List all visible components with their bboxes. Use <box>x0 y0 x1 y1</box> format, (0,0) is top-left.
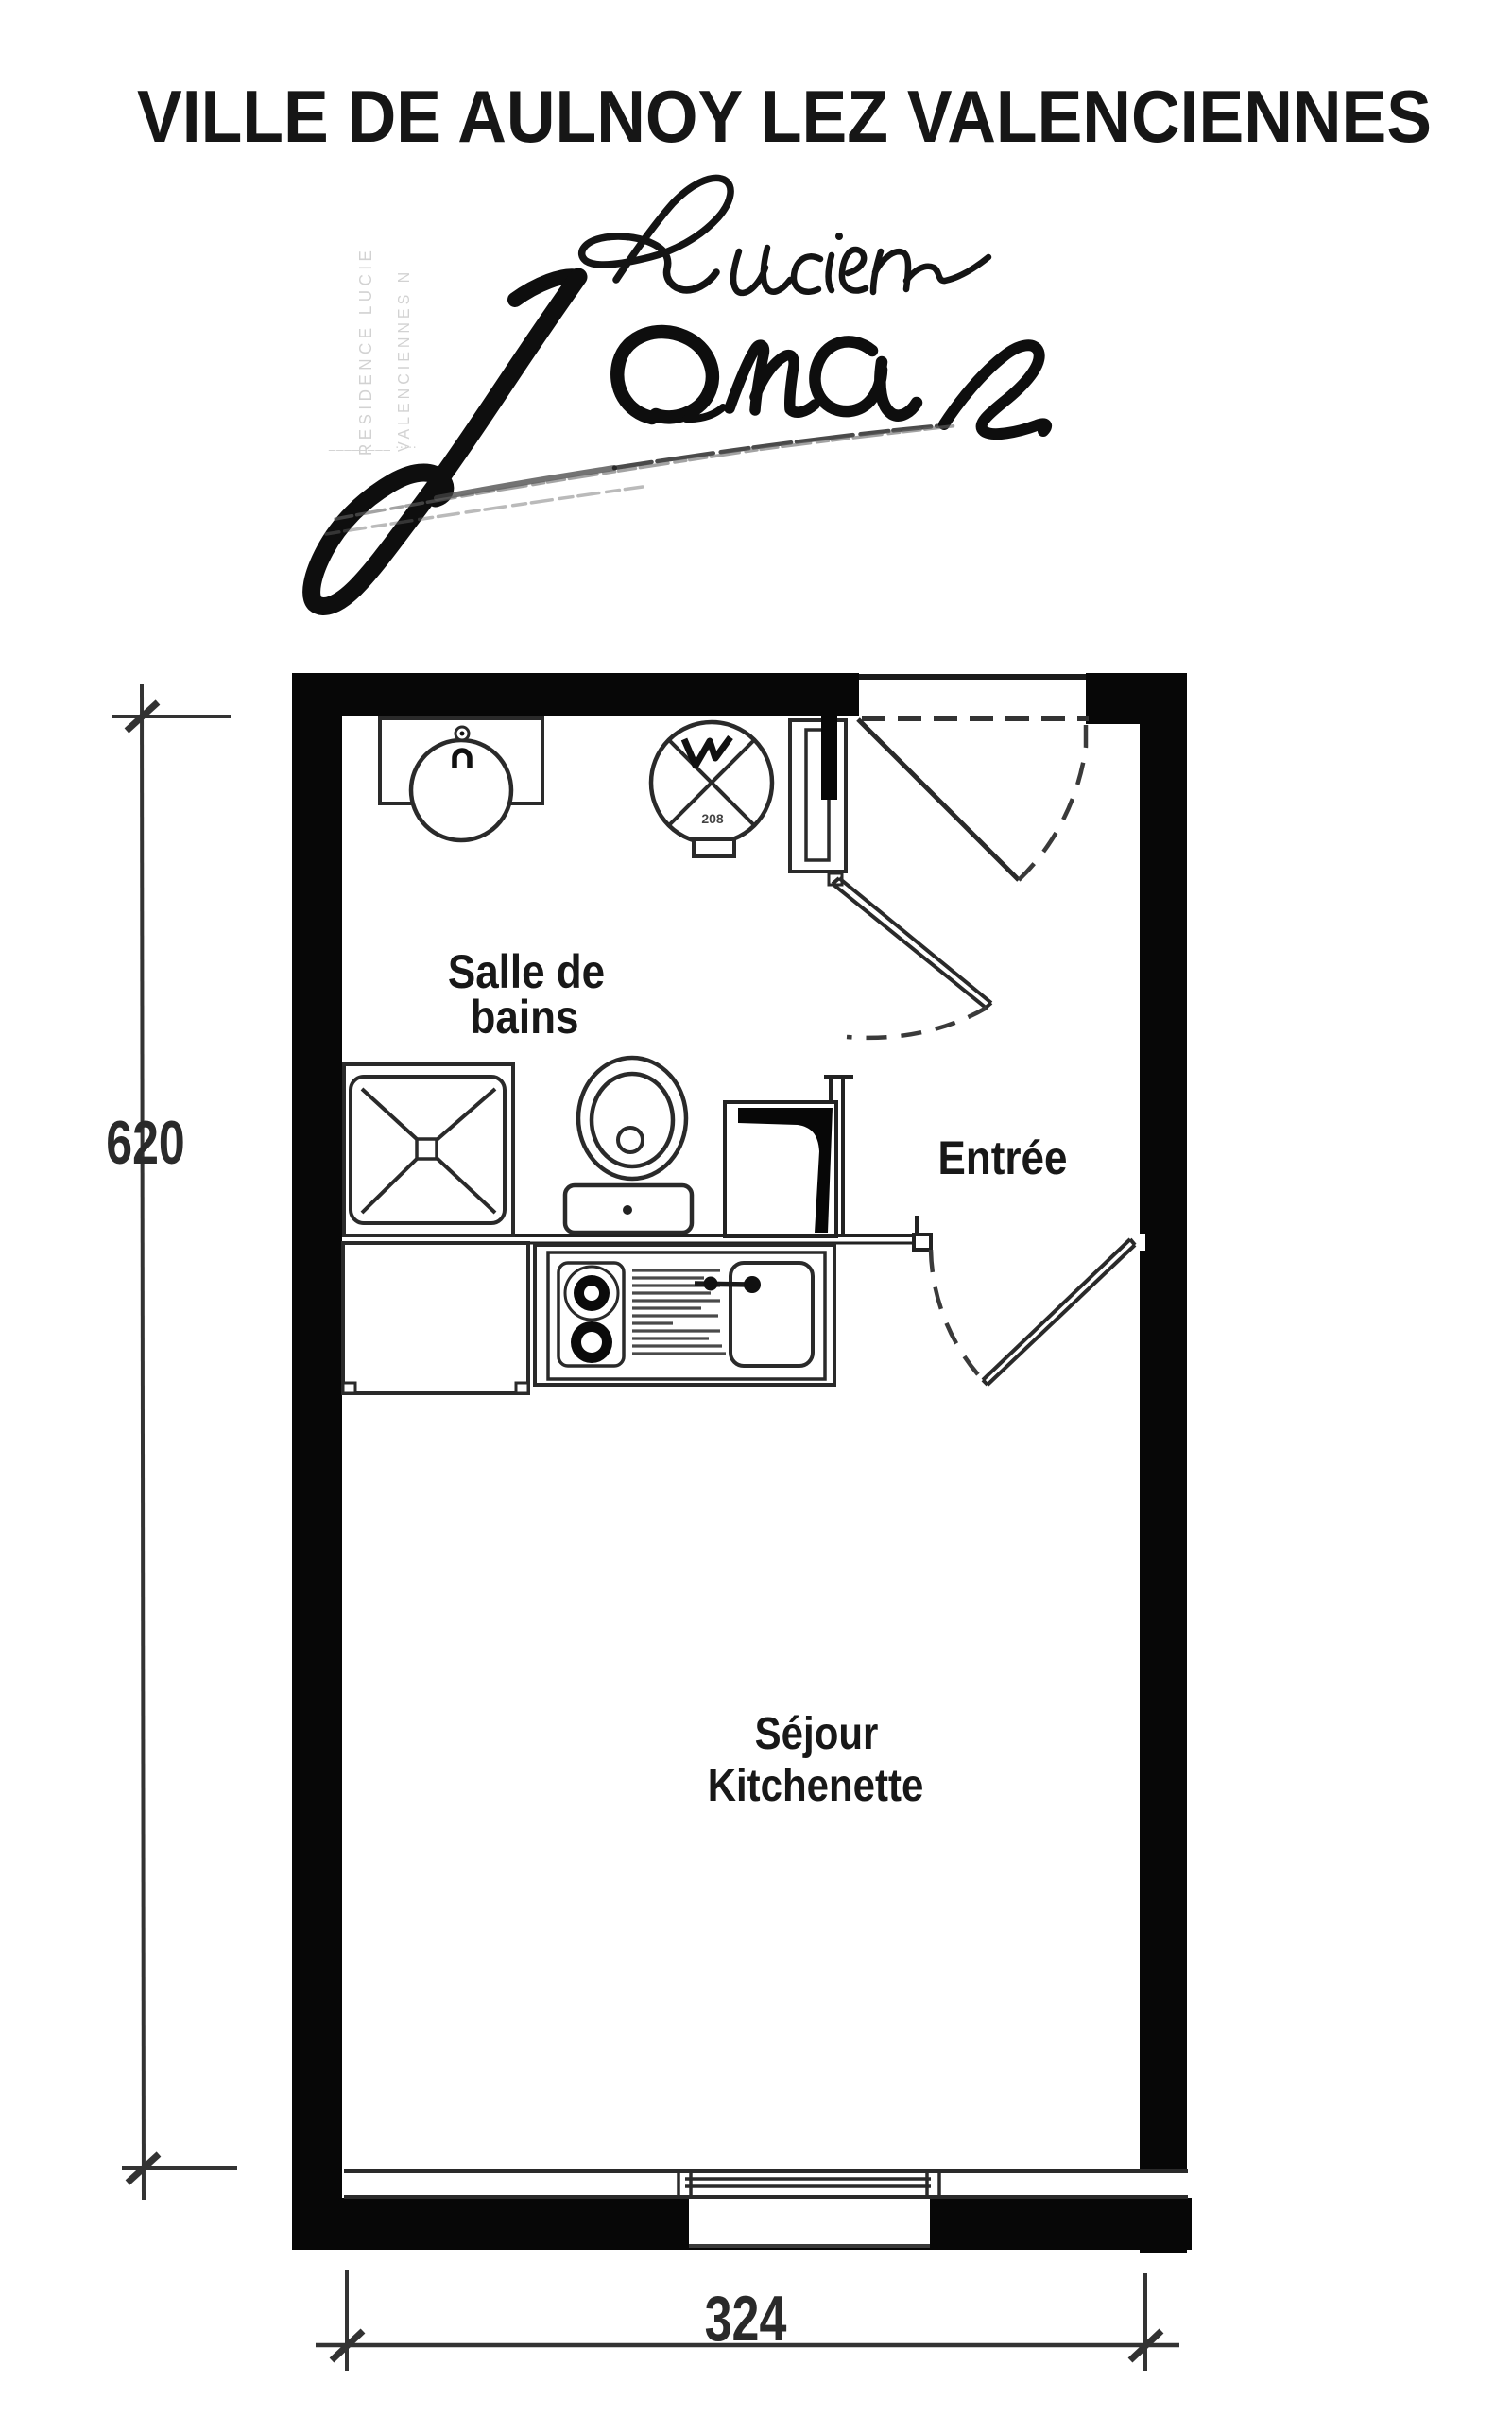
svg-text:RESIDENCE LUCIE: RESIDENCE LUCIE <box>355 247 375 456</box>
svg-text:Entrée: Entrée <box>938 1131 1068 1183</box>
svg-text:208: 208 <box>701 811 724 826</box>
svg-text:Séjour: Séjour <box>755 1707 879 1758</box>
svg-text:bains: bains <box>471 990 579 1043</box>
svg-text:VILLE DE AULNOY LEZ VALENCIENN: VILLE DE AULNOY LEZ VALENCIENNES <box>137 77 1432 158</box>
svg-text:VALENCIENNES N: VALENCIENNES N <box>394 268 413 452</box>
svg-text:Kitchenette: Kitchenette <box>708 1759 924 1810</box>
svg-text:________ .....: ________ ..... <box>328 436 417 451</box>
svg-text:324: 324 <box>705 2282 787 2354</box>
svg-text:620: 620 <box>106 1110 184 1178</box>
